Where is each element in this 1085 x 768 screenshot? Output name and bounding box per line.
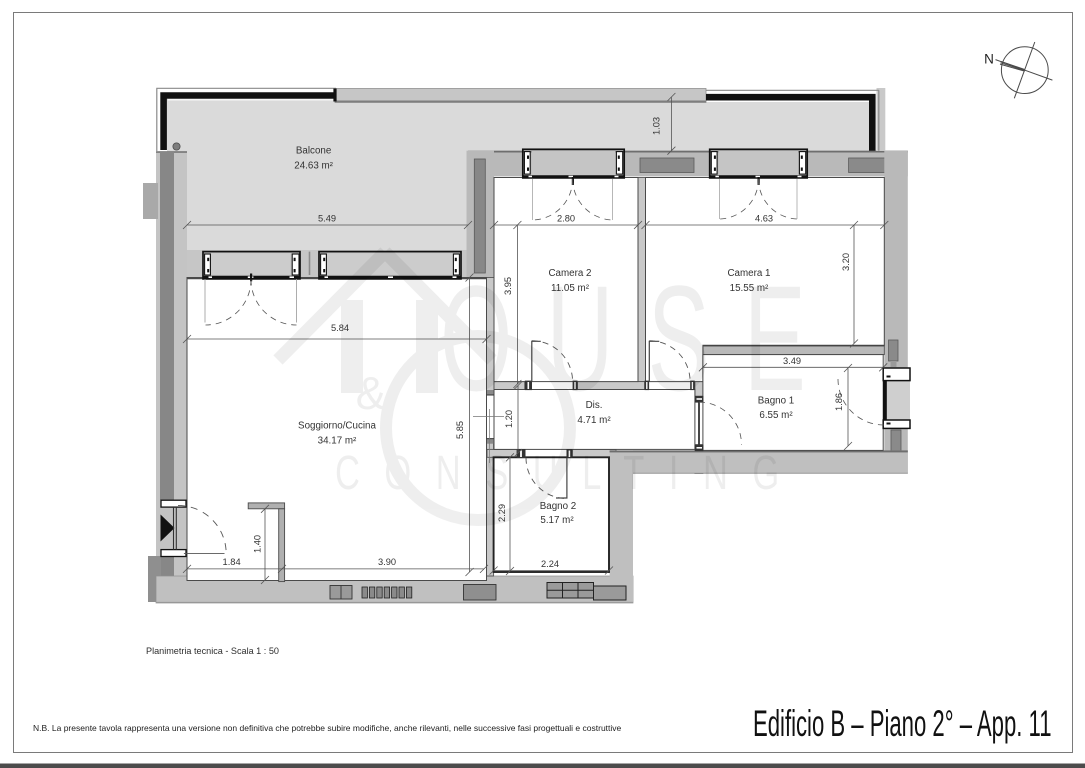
svg-text:2.24: 2.24 bbox=[541, 559, 559, 569]
svg-text:24.63 m²: 24.63 m² bbox=[294, 160, 333, 171]
svg-text:1.40: 1.40 bbox=[253, 535, 263, 553]
svg-text:N: N bbox=[984, 52, 994, 67]
svg-text:3.20: 3.20 bbox=[841, 253, 851, 271]
svg-text:1.84: 1.84 bbox=[223, 557, 241, 567]
svg-text:1.03: 1.03 bbox=[652, 117, 662, 135]
svg-text:3.90: 3.90 bbox=[378, 557, 396, 567]
svg-text:Edificio B – Piano 2° – App. 1: Edificio B – Piano 2° – App. 11 bbox=[753, 702, 1052, 745]
svg-text:N.B. La presente tavola rappre: N.B. La presente tavola rappresenta una … bbox=[33, 723, 622, 733]
svg-text:2.80: 2.80 bbox=[557, 214, 575, 224]
svg-text:OUSE: OUSE bbox=[440, 255, 840, 422]
svg-text:5.17 m²: 5.17 m² bbox=[540, 515, 574, 526]
svg-text:5.49: 5.49 bbox=[318, 214, 336, 224]
svg-text:4.63: 4.63 bbox=[755, 214, 773, 224]
svg-text:Bagno 2: Bagno 2 bbox=[540, 501, 577, 512]
svg-text:5.85: 5.85 bbox=[455, 421, 465, 439]
svg-text:Planimetria tecnica - Scala 1: Planimetria tecnica - Scala 1 : 50 bbox=[146, 646, 279, 656]
svg-text:Balcone: Balcone bbox=[296, 146, 332, 157]
svg-text:CONSULTING: CONSULTING bbox=[335, 445, 804, 499]
svg-text:Soggiorno/Cucina: Soggiorno/Cucina bbox=[298, 421, 376, 432]
